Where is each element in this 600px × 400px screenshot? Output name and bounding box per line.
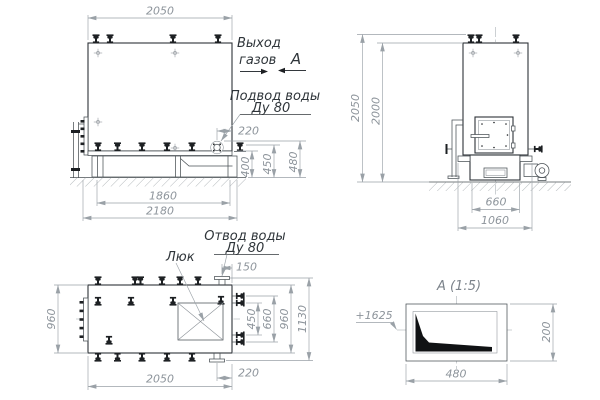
bottom-flange-plan bbox=[210, 353, 225, 362]
dim-480-detail: 480 bbox=[446, 368, 467, 381]
side-base-box bbox=[458, 155, 532, 180]
plan-top-valves bbox=[95, 276, 202, 285]
dim-480: 480 bbox=[287, 152, 300, 173]
valve-icon bbox=[139, 353, 146, 362]
dim-200-detail: 200 bbox=[540, 322, 553, 343]
dim-150: 150 bbox=[236, 261, 257, 274]
valve-icon bbox=[534, 146, 543, 153]
valve-icon bbox=[93, 34, 100, 43]
elevation-text: +1625 bbox=[355, 309, 392, 322]
technical-drawing-sheet: 2050 1860 2180 220 400 45 bbox=[0, 0, 600, 400]
boiler-body-front bbox=[88, 43, 232, 151]
side-pipe bbox=[446, 120, 464, 179]
water-inlet-flange bbox=[211, 141, 224, 154]
dim-2050-plan: 2050 bbox=[146, 373, 174, 386]
plan-dim-220: 220 bbox=[217, 363, 259, 381]
valve-icon bbox=[476, 34, 483, 43]
ground-side bbox=[429, 182, 571, 191]
side-right-nozzle bbox=[528, 146, 543, 153]
section-mark-text: А bbox=[290, 50, 301, 68]
dim-960-left: 960 bbox=[45, 309, 58, 330]
gas-out-text-1: Выход bbox=[237, 36, 281, 51]
door-handle bbox=[471, 135, 489, 138]
water-outlet-flange-plan bbox=[215, 277, 230, 286]
front-view: 2050 1860 2180 220 400 45 bbox=[70, 5, 320, 222]
detail-view-a: А (1:5) +1625 480 200 bbox=[355, 279, 557, 385]
valve-icon bbox=[513, 34, 520, 43]
dim-960-right: 960 bbox=[278, 309, 291, 330]
valve-icon bbox=[215, 34, 222, 43]
valve-icon bbox=[137, 276, 144, 285]
base-frame-front bbox=[88, 151, 237, 177]
elevation-mark: +1625 bbox=[355, 309, 396, 330]
detail-dim-height: 200 bbox=[510, 304, 557, 361]
plan-left-flange bbox=[80, 298, 89, 341]
view-direction-arrow-icon bbox=[278, 68, 285, 73]
boiler-drawing: 2050 1860 2180 220 400 45 bbox=[0, 0, 600, 400]
water-out-text-2: Ду 80 bbox=[225, 241, 265, 256]
valve-icon bbox=[236, 339, 245, 346]
detail-title: А (1:5) bbox=[436, 279, 481, 294]
valve-icon bbox=[237, 142, 244, 151]
burner-fan bbox=[524, 164, 549, 181]
side-view: 2050 2000 660 1060 bbox=[349, 27, 571, 231]
valve-icon bbox=[236, 332, 245, 339]
detail-dim-width: 480 bbox=[406, 364, 507, 385]
front-top-valves bbox=[93, 34, 222, 43]
valve-icon bbox=[114, 353, 121, 362]
dim-660-side: 660 bbox=[486, 196, 507, 209]
dim-1130: 1130 bbox=[296, 305, 309, 333]
furnace-door bbox=[471, 117, 515, 153]
valve-icon bbox=[107, 34, 114, 43]
top-view: Люк Отвод воды Ду 80 150 450 660 bbox=[45, 229, 313, 390]
dim-660-plan: 660 bbox=[261, 309, 274, 330]
section-view-mark: А bbox=[278, 50, 306, 73]
dim-2050-top: 2050 bbox=[146, 5, 174, 18]
water-inlet-label: Подвод воды Ду 80 bbox=[221, 89, 320, 141]
dim-2000: 2000 bbox=[370, 97, 383, 125]
valve-icon bbox=[164, 353, 171, 362]
valve-icon bbox=[177, 276, 184, 285]
gas-outlet-label: Выход газов bbox=[237, 36, 281, 74]
valve-icon bbox=[159, 276, 166, 285]
dim-2180: 2180 bbox=[146, 205, 174, 218]
valve-icon bbox=[95, 353, 102, 362]
hatch-text: Люк bbox=[165, 250, 195, 265]
valve-icon bbox=[95, 276, 102, 285]
gas-flow-arrow-icon bbox=[261, 69, 268, 74]
side-dim-heights: 2050 2000 bbox=[349, 35, 466, 183]
water-in-text-2: Ду 80 bbox=[251, 101, 291, 116]
dim-450-plan: 450 bbox=[245, 309, 258, 330]
ground-front bbox=[70, 178, 246, 187]
valve-icon bbox=[468, 34, 475, 43]
front-left-flange bbox=[81, 117, 89, 155]
plan-bottom-valves bbox=[95, 353, 196, 362]
dim-2050-side: 2050 bbox=[349, 94, 362, 122]
valve-icon bbox=[236, 300, 245, 307]
gas-out-text-2: газов bbox=[239, 53, 276, 68]
dim-220-plan: 220 bbox=[238, 367, 259, 380]
dim-220-front: 220 bbox=[238, 125, 259, 138]
dim-1060: 1060 bbox=[481, 214, 509, 227]
valve-icon bbox=[170, 34, 177, 43]
dim-450: 450 bbox=[261, 154, 274, 175]
valve-icon bbox=[195, 276, 202, 285]
dim-400: 400 bbox=[239, 157, 252, 178]
dim-1860: 1860 bbox=[149, 190, 177, 203]
valve-icon bbox=[189, 353, 196, 362]
valve-icon bbox=[236, 293, 245, 300]
